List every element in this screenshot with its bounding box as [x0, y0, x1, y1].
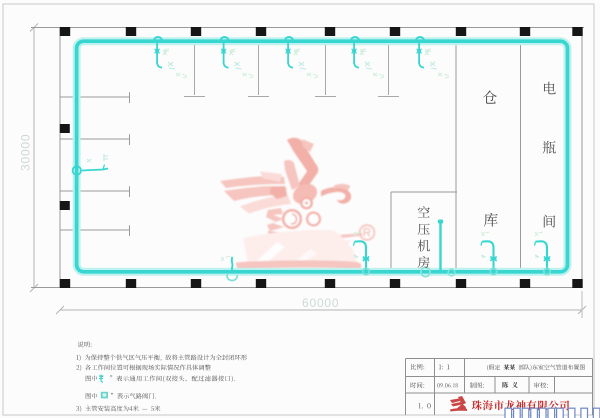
svg-text:60000: 60000 — [302, 296, 339, 310]
svg-text:30000: 30000 — [19, 134, 33, 171]
